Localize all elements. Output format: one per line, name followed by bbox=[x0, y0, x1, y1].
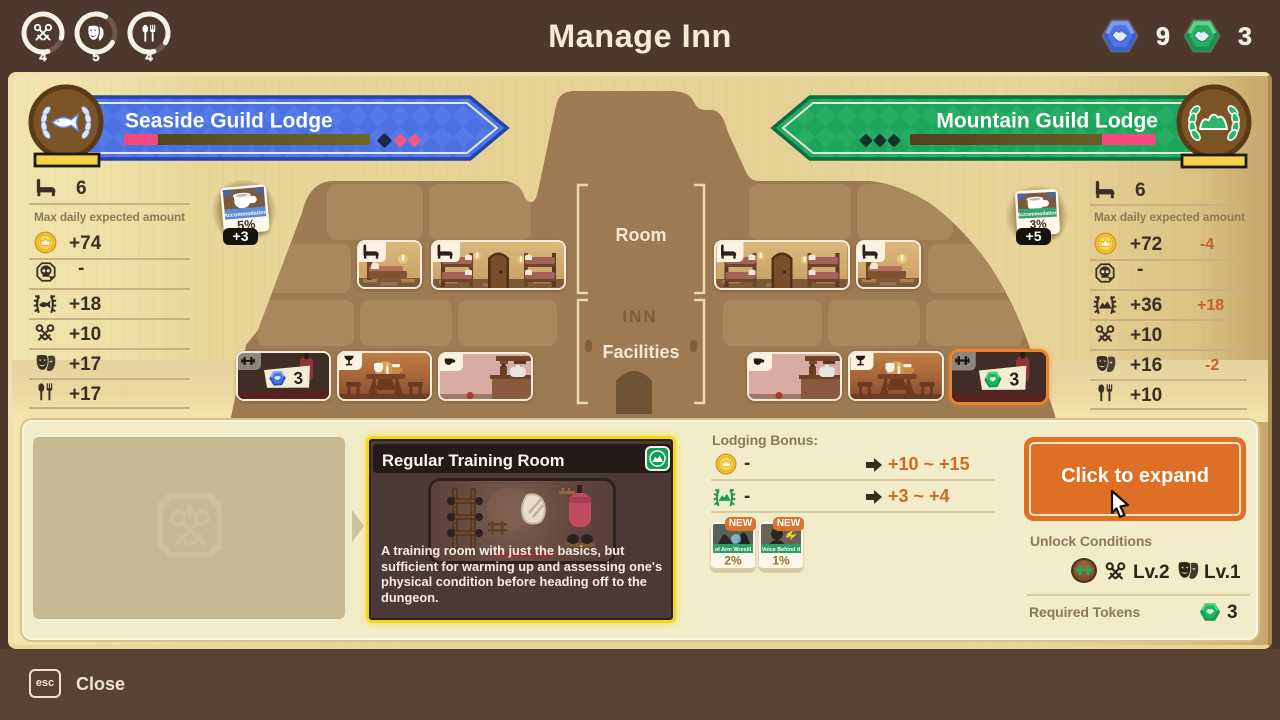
svg-text:3: 3 bbox=[293, 368, 303, 387]
svg-text:9: 9 bbox=[1156, 23, 1170, 51]
svg-text:Seaside Guild Lodge: Seaside Guild Lodge bbox=[125, 110, 333, 133]
svg-text:of Arm Wrestli: of Arm Wrestli bbox=[715, 547, 752, 553]
svg-text:5: 5 bbox=[92, 49, 99, 64]
svg-text:INN: INN bbox=[622, 307, 657, 326]
svg-text:Mountain Guild Lodge: Mountain Guild Lodge bbox=[936, 110, 1158, 133]
svg-text:Room: Room bbox=[616, 225, 667, 245]
svg-text:2%: 2% bbox=[724, 554, 742, 568]
svg-text:Facilities: Facilities bbox=[602, 342, 679, 362]
svg-text:4: 4 bbox=[145, 49, 153, 64]
svg-text:4: 4 bbox=[39, 49, 47, 64]
svg-text:3: 3 bbox=[1009, 369, 1020, 390]
svg-text:Voice Behind tl: Voice Behind tl bbox=[762, 547, 801, 553]
svg-text:1%: 1% bbox=[772, 554, 790, 568]
svg-text:3: 3 bbox=[1238, 23, 1252, 51]
